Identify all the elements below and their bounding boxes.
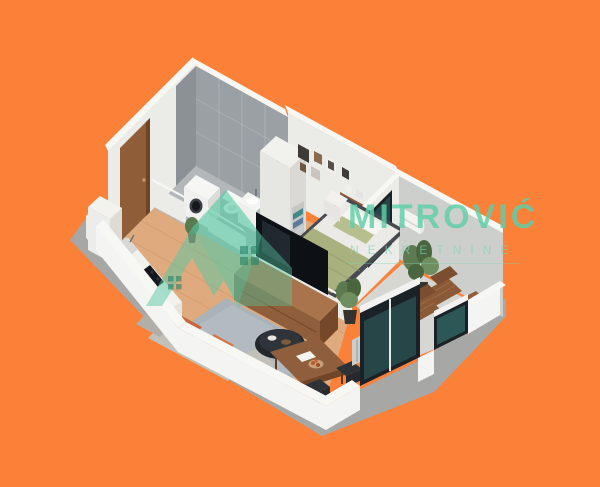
- entrance-door-edge: [146, 118, 150, 216]
- door-handle: [142, 178, 145, 181]
- bathroom-tile-side-wall: [176, 66, 196, 186]
- floorplan-render: MITROVIĆ NEKRETNINE: [0, 0, 600, 487]
- apartment-floorplan-scene: [0, 0, 600, 487]
